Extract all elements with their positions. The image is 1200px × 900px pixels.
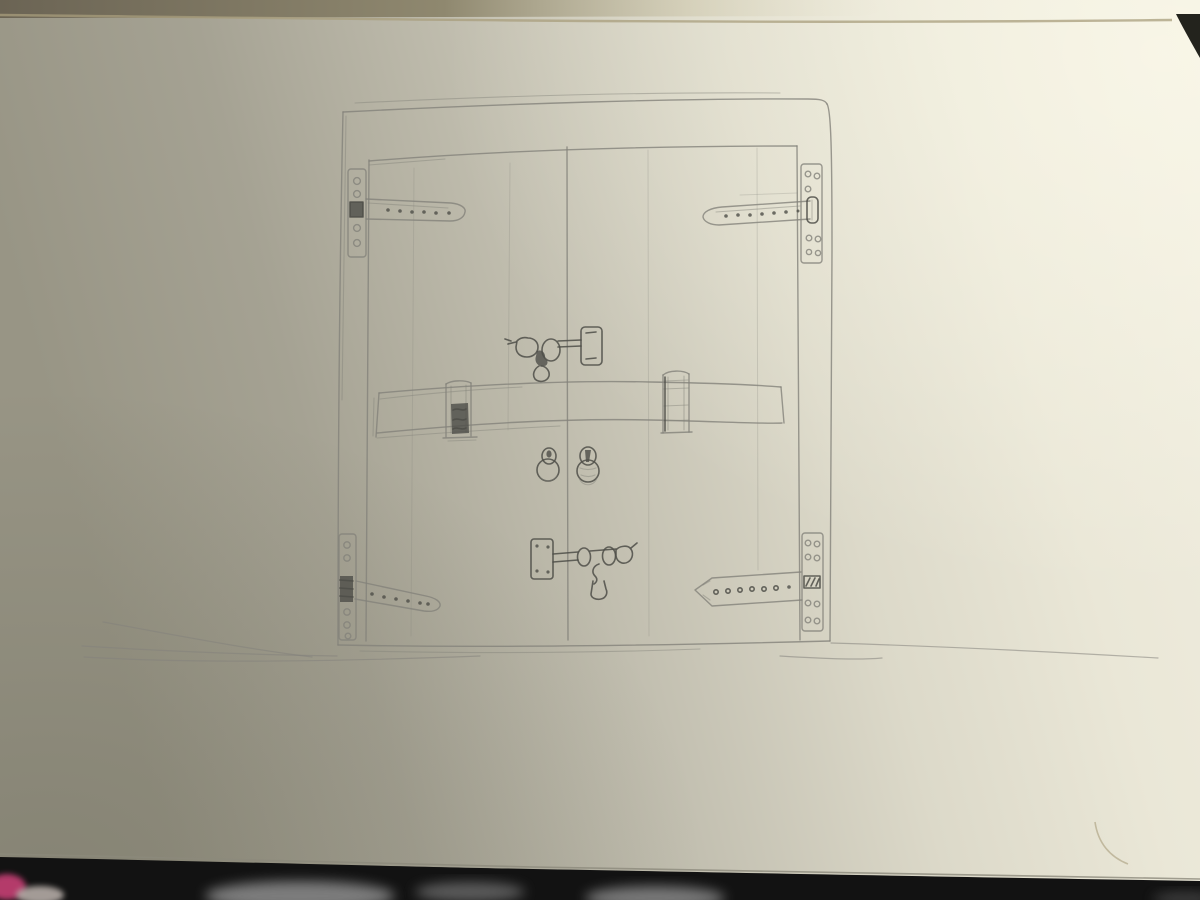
paper — [0, 0, 1200, 900]
sketch-photo — [0, 0, 1200, 900]
photo-of-sketchbook — [0, 0, 1200, 900]
hinge-knuckle — [350, 202, 363, 217]
